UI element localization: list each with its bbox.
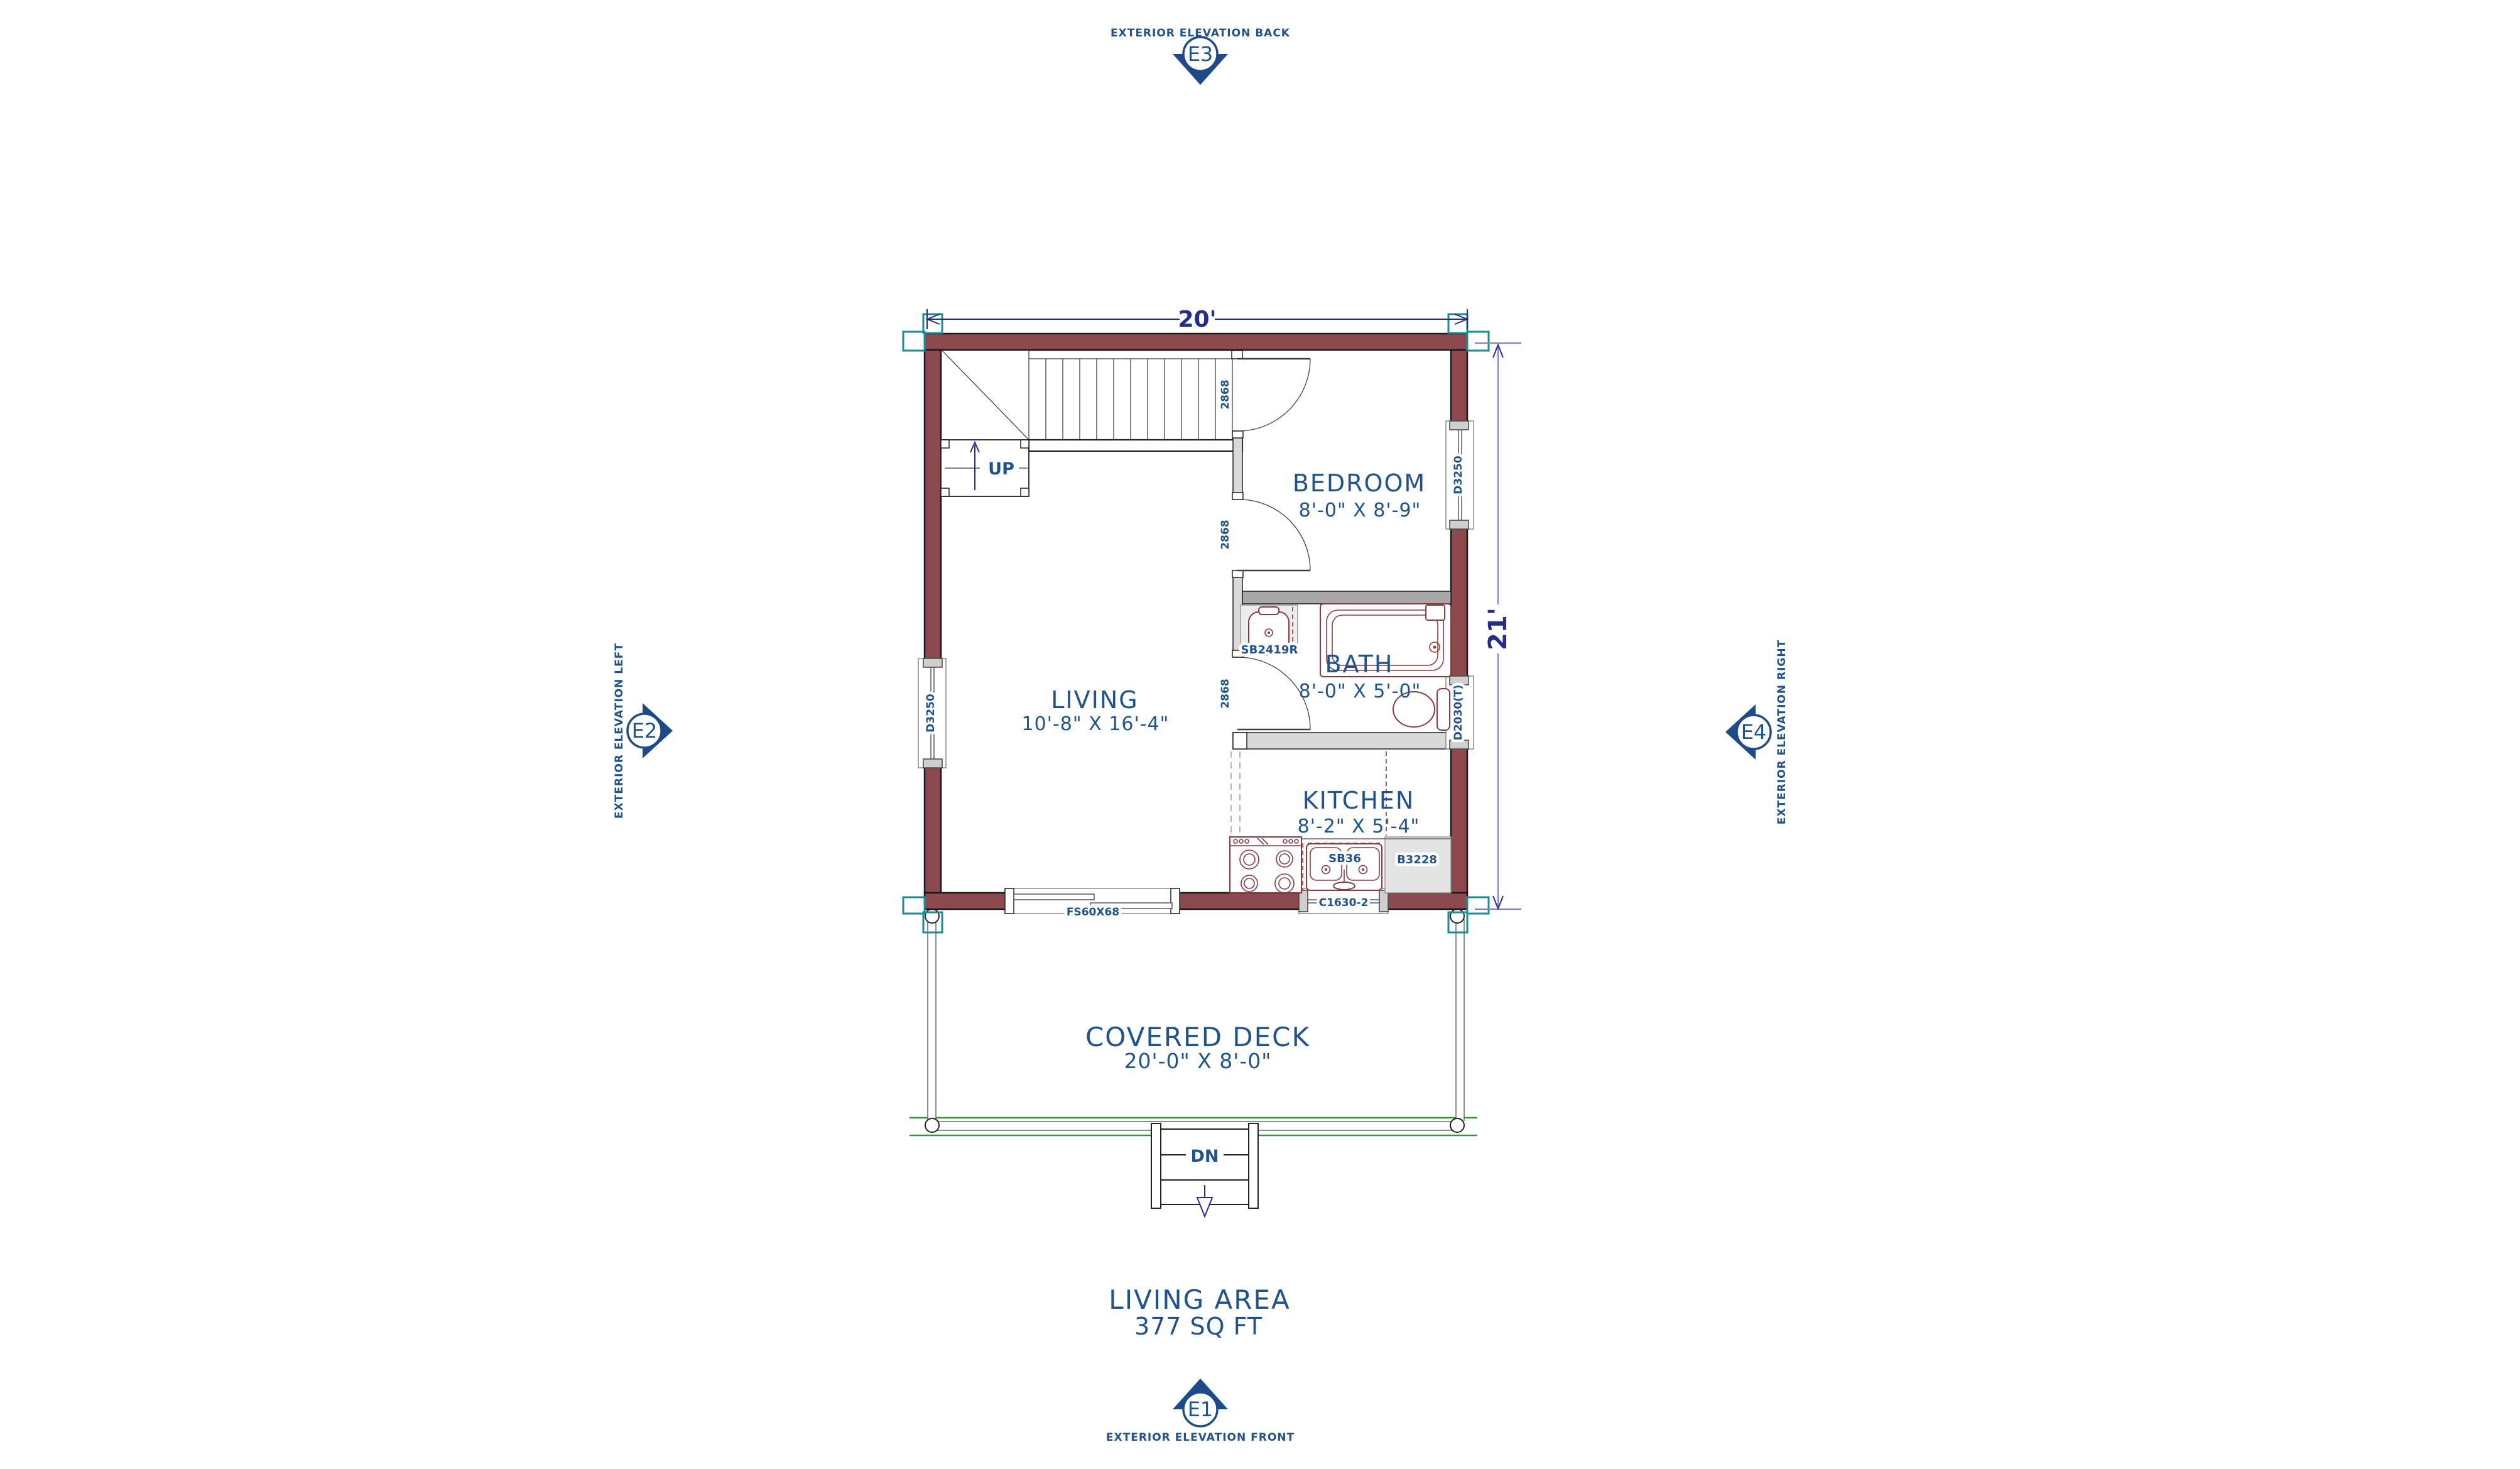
bath-door-label: 2868: [1219, 679, 1232, 708]
elevation-marker-right: EXTERIOR ELEVATION RIGHT E4: [1725, 640, 1788, 824]
bathroom: SB2419R BATH 8'-0" X 5'-0": [1241, 604, 1451, 730]
landing-cap: [941, 488, 949, 496]
dn-stringer-left: [1151, 1123, 1161, 1208]
vanity-label: SB2419R: [1241, 643, 1298, 657]
sink-faucet-base: [1333, 882, 1355, 890]
stair-stringer: [1029, 440, 1242, 451]
corner-marker-icon: [1467, 332, 1489, 351]
bath-kitchen-wall: [1233, 733, 1451, 749]
toilet-tank-icon: [1437, 689, 1450, 730]
wall-bottom-middle: [1175, 893, 1303, 909]
elevation-front-code: E1: [1188, 1397, 1214, 1421]
bedroom-room-size: 8'-0" X 8'-9": [1299, 500, 1421, 522]
wall-stub-cap: [1232, 493, 1243, 500]
landing-cap: [1021, 488, 1029, 496]
bedroom-room-label: BEDROOM: [1293, 469, 1426, 497]
elevation-front-caption: EXTERIOR ELEVATION FRONT: [1106, 1431, 1295, 1444]
kitchen: SB36 B3228 KITCHEN 8'-2" X 5'-4": [1230, 751, 1451, 893]
bathtub-faucet-icon: [1426, 605, 1445, 620]
slider-cap: [1005, 888, 1014, 914]
vanity-faucet-icon: [1259, 607, 1279, 614]
up-label: UP: [988, 459, 1014, 479]
deck-stairs-down: DN: [1151, 1123, 1258, 1216]
slider-panel: [1014, 894, 1094, 900]
window-living: D3250: [918, 658, 946, 768]
window-kitchen-label: C1630-2: [1319, 897, 1369, 909]
window-kitchen: C1630-2: [1299, 888, 1388, 914]
kitchen-sink-label: SB36: [1328, 852, 1361, 865]
corner-marker-icon: [1467, 897, 1489, 914]
elevation-marker-front: E1 EXTERIOR ELEVATION FRONT: [1106, 1379, 1295, 1444]
bath-room-size: 8'-0" X 5'-0": [1299, 680, 1421, 702]
deck-room-size: 20'-0" X 8'-0": [1124, 1049, 1272, 1073]
living-area-value: 377 SQ FT: [1134, 1313, 1263, 1340]
elevation-marker-back: EXTERIOR ELEVATION BACK E3: [1111, 27, 1290, 85]
window-bedroom: D3250: [1446, 421, 1474, 529]
living-area-title: LIVING AREA: [1109, 1284, 1290, 1315]
stair-door-label: 2868: [1219, 380, 1232, 409]
sink-drain-dot: [1362, 868, 1364, 871]
wall-right-middle: [1451, 524, 1467, 680]
living-room-label: LIVING: [1051, 686, 1138, 714]
elevation-back-code: E3: [1188, 42, 1214, 66]
deck-rail-left-fill: [928, 919, 936, 1121]
bedroom-door-label: 2868: [1219, 520, 1232, 549]
landing-cap: [941, 440, 949, 448]
dn-stringer-right: [1249, 1123, 1258, 1208]
wall-stub-cap: [1232, 431, 1243, 438]
deck-post: [925, 1118, 939, 1132]
corner-marker-icon: [903, 897, 925, 914]
window-cap: [1450, 740, 1469, 749]
kitchen-sink: SB36: [1306, 844, 1382, 890]
window-cap: [1450, 421, 1469, 430]
kitchen-room-label: KITCHEN: [1303, 787, 1415, 814]
floor-plan-sheet: COVERED DECK 20'-0" X 8'-0" DN: [0, 0, 2520, 1469]
floor-plan-drawing: COVERED DECK 20'-0" X 8'-0" DN: [0, 0, 2520, 1469]
vanity-drain-dot: [1268, 631, 1270, 634]
bath-room-label: BATH: [1325, 650, 1394, 678]
deck-post: [1450, 909, 1464, 923]
deck-post: [925, 909, 939, 923]
landing-cap: [1021, 440, 1029, 448]
window-cap: [1450, 520, 1469, 529]
stove: [1230, 837, 1301, 893]
stairs-up: UP: [941, 351, 1242, 496]
window-cap: [923, 759, 942, 768]
window-cap: [1379, 890, 1388, 912]
slider-deck: FS60X68: [1005, 888, 1180, 919]
stair-diagonal-line: [942, 351, 1029, 440]
window-bedroom-label: D3250: [1452, 456, 1465, 494]
wall-bottom-right: [1384, 893, 1467, 909]
wall-stub-cap: [1233, 733, 1247, 749]
kitchen-room-size: 8'-2" X 5'-4": [1298, 816, 1420, 838]
wall-bottom-left: [925, 893, 1009, 909]
dimension-height: 21': [1475, 343, 1521, 909]
deck-room-label: COVERED DECK: [1085, 1022, 1310, 1052]
bedroom-west-wall-upper: [1233, 431, 1242, 500]
sink-drain-dot: [1325, 868, 1327, 871]
wall-left-upper: [925, 350, 941, 663]
elevation-left-caption: EXTERIOR ELEVATION LEFT: [613, 643, 626, 819]
dimension-width-label: 20': [1178, 307, 1216, 332]
deck-rail-right-fill: [1456, 919, 1464, 1121]
covered-deck: COVERED DECK 20'-0" X 8'-0" DN: [910, 909, 1477, 1216]
bedroom-bath-divider-wall: [1242, 591, 1451, 604]
wall-top: [925, 334, 1467, 350]
elevation-left-code: E2: [632, 719, 658, 743]
stair-door-swing: [1238, 359, 1310, 431]
bathtub-drain-dot: [1433, 646, 1437, 649]
dimension-height-label: 21': [1484, 608, 1513, 650]
window-cap: [1450, 676, 1469, 685]
wall-right-upper: [1451, 350, 1467, 426]
elevation-right-caption: EXTERIOR ELEVATION RIGHT: [1776, 640, 1788, 824]
doors: 2868 2868 2868: [1219, 359, 1310, 729]
window-bath-label: D2030(T): [1452, 685, 1465, 741]
corner-marker-icon: [903, 332, 925, 351]
base-cabinet-label: B3228: [1397, 853, 1437, 866]
elevation-right-code: E4: [1741, 720, 1767, 744]
window-cap: [1299, 890, 1308, 912]
wall-stub-cap: [1232, 571, 1243, 577]
window-living-label: D3250: [925, 694, 937, 733]
living-room-size: 10'-8" X 16'-4": [1022, 713, 1170, 735]
dimension-width: 20': [927, 307, 1467, 332]
wall-left-lower: [925, 763, 941, 893]
slider-cap: [1171, 888, 1180, 914]
elevation-marker-left: EXTERIOR ELEVATION LEFT E2: [613, 643, 673, 819]
window-cap: [923, 658, 942, 667]
stair-top-band: [1029, 351, 1233, 359]
deck-post: [1450, 1118, 1464, 1132]
wall-stub-cap: [1232, 351, 1242, 359]
dn-label: DN: [1190, 1147, 1219, 1166]
wall-right-lower: [1451, 744, 1467, 893]
slider-deck-label: FS60X68: [1067, 906, 1119, 919]
